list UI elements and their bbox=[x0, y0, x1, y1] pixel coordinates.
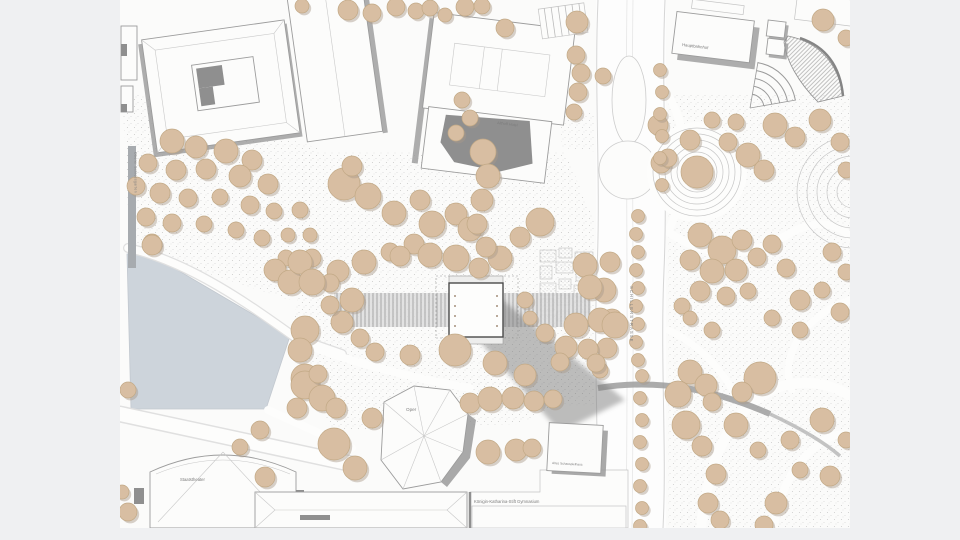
tree bbox=[569, 83, 589, 103]
building-northeast-complex bbox=[764, 0, 850, 102]
building-hauptbahnhof bbox=[671, 0, 762, 69]
tree bbox=[120, 503, 139, 523]
site-plan-image: Hauptbahnhof Althoff Hotel SCHILLERSTRAS… bbox=[120, 0, 850, 528]
site-plan-svg: Hauptbahnhof Althoff Hotel SCHILLERSTRAS… bbox=[120, 0, 850, 528]
tree bbox=[572, 64, 592, 84]
tree bbox=[120, 485, 131, 501]
label-park-vertical: Oberer Schlossgarten bbox=[134, 152, 138, 193]
label-gymnasium: Königin-Katharina-Stift Gymnasium bbox=[474, 499, 540, 504]
tree bbox=[476, 440, 502, 466]
building-theater-annex bbox=[255, 492, 467, 528]
tree bbox=[838, 30, 850, 48]
tree bbox=[343, 456, 369, 482]
label-schillerstrasse: SCHILLERSTRASSE bbox=[629, 286, 634, 343]
label-staatstheater: Staatstheater bbox=[180, 477, 206, 482]
pavilion-building bbox=[449, 283, 503, 337]
label-oper: Oper bbox=[406, 407, 417, 412]
building-schauspielhaus bbox=[547, 423, 609, 477]
tree bbox=[474, 0, 492, 16]
screenshot-page: Hauptbahnhof Althoff Hotel SCHILLERSTRAS… bbox=[0, 0, 960, 540]
tree bbox=[387, 0, 407, 18]
